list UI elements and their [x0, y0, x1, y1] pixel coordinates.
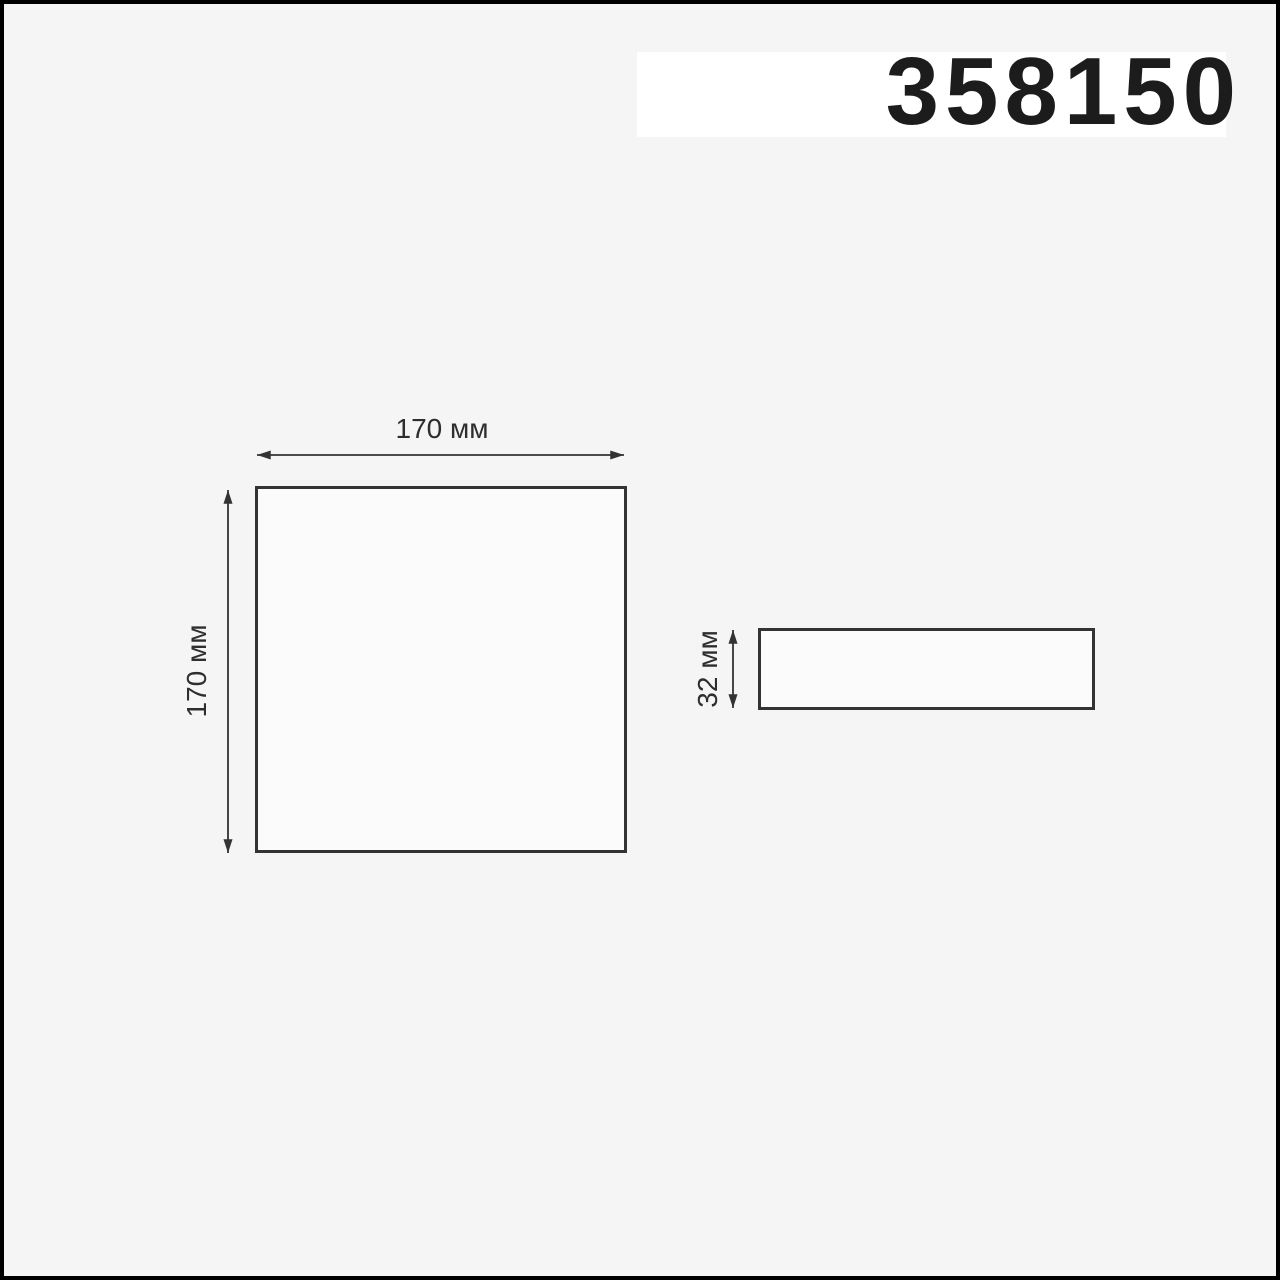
side-view-outline — [758, 628, 1095, 710]
product-code: 358150 — [886, 44, 1242, 146]
front-width-label: 170 мм — [342, 412, 542, 446]
front-view-outline — [255, 486, 627, 853]
front-height-label: 170 мм — [180, 571, 214, 771]
side-thickness-label: 32 мм — [691, 569, 725, 769]
product-code-band: 358150 — [637, 52, 1226, 137]
spec-sheet: 358150 170 мм 170 мм 32 мм — [0, 0, 1280, 1280]
